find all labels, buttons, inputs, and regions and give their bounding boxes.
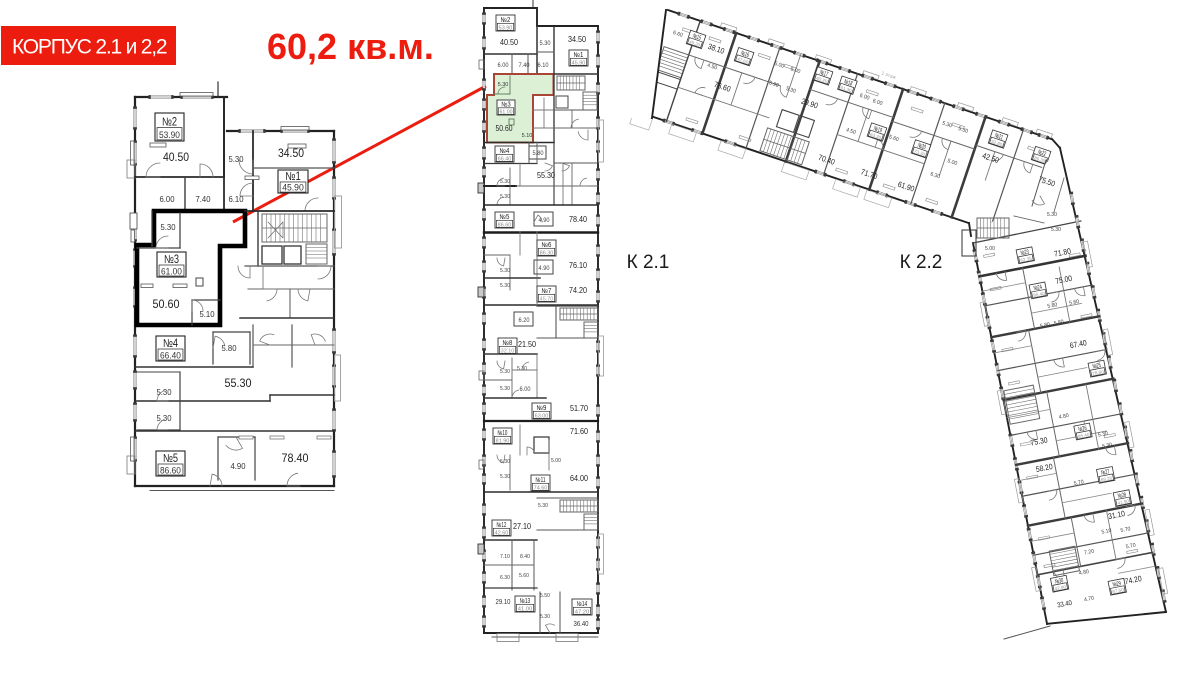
svg-text:50.60: 50.60 [496,123,513,133]
svg-text:5.30: 5.30 [500,268,510,274]
svg-text:5.30: 5.30 [540,41,552,47]
svg-text:5.30: 5.30 [1047,212,1057,218]
svg-text:86.60: 86.60 [160,466,181,477]
svg-text:№7: №7 [542,288,552,295]
svg-text:86.30: 86.30 [540,250,554,256]
svg-text:6.00: 6.00 [520,387,532,393]
svg-text:21.50: 21.50 [518,339,536,349]
svg-text:5.30: 5.30 [229,154,244,164]
svg-text:60,2 кв.м.: 60,2 кв.м. [267,26,434,67]
svg-text:5.10: 5.10 [522,133,533,139]
svg-text:КОРПУС 2.1 и 2,2: КОРПУС 2.1 и 2,2 [12,36,167,59]
svg-text:5.50: 5.50 [540,593,550,599]
svg-text:5.30: 5.30 [1051,227,1061,233]
svg-text:50.60: 50.60 [153,297,180,311]
svg-text:4.90: 4.90 [539,266,551,272]
svg-text:74.20: 74.20 [569,285,587,295]
svg-text:№14: №14 [577,601,587,608]
svg-text:51.70: 51.70 [570,403,588,413]
svg-text:5.10: 5.10 [200,309,215,319]
svg-text:5.30: 5.30 [500,194,510,200]
svg-text:40.50: 40.50 [163,150,189,164]
svg-text:81.90: 81.90 [496,438,510,444]
svg-text:8.40: 8.40 [520,554,530,560]
svg-text:5.60: 5.60 [519,573,529,579]
svg-text:№3: №3 [501,102,510,109]
svg-text:№8: №8 [503,340,513,347]
svg-text:71.60: 71.60 [570,426,588,436]
svg-text:34.50: 34.50 [278,146,304,160]
svg-text:7.40: 7.40 [196,194,211,204]
svg-text:5.80: 5.80 [222,343,237,353]
svg-text:№6: №6 [542,242,552,249]
svg-text:78.40: 78.40 [282,451,309,465]
svg-text:№9: №9 [537,405,547,412]
svg-text:№13: №13 [520,598,530,605]
svg-text:5.30: 5.30 [538,503,548,509]
svg-text:55.30: 55.30 [537,170,555,180]
svg-text:№5: №5 [500,214,510,221]
svg-text:№2: №2 [501,17,511,24]
svg-text:63.00: 63.00 [535,413,549,419]
svg-text:5.30: 5.30 [161,222,176,232]
svg-text:№4: №4 [500,148,510,155]
svg-text:66.40: 66.40 [498,156,512,162]
svg-text:5.30: 5.30 [157,413,172,423]
svg-text:61.00: 61.00 [161,267,182,278]
svg-text:5.30: 5.30 [500,369,510,375]
svg-text:6.30: 6.30 [500,575,510,581]
svg-text:5.30: 5.30 [500,283,510,289]
svg-text:№10: №10 [498,430,508,437]
svg-text:45.70: 45.70 [540,296,554,302]
svg-text:5.30: 5.30 [157,387,172,397]
svg-text:5.30: 5.30 [540,614,550,620]
svg-text:5.30: 5.30 [500,179,510,185]
svg-text:27.10: 27.10 [513,521,531,531]
svg-text:4.90: 4.90 [231,461,246,471]
svg-text:78.40: 78.40 [569,214,587,224]
svg-text:29.10: 29.10 [496,597,511,606]
svg-text:№5: №5 [163,453,178,465]
svg-text:5.00: 5.00 [985,246,995,252]
svg-text:53.90: 53.90 [159,130,180,141]
svg-text:41.00: 41.00 [518,606,533,612]
svg-text:№4: №4 [163,338,179,350]
svg-text:36.40: 36.40 [574,619,589,628]
svg-text:5.30: 5.30 [500,386,510,392]
svg-text:6.10: 6.10 [538,63,550,69]
svg-text:64.00: 64.00 [570,473,588,483]
svg-text:74.60: 74.60 [534,485,548,491]
svg-text:86.60: 86.60 [498,222,512,228]
svg-text:5.30: 5.30 [498,82,509,88]
svg-text:47.20: 47.20 [575,609,590,615]
svg-text:6.00: 6.00 [160,194,175,204]
svg-text:6.20: 6.20 [519,318,531,324]
svg-text:7.10: 7.10 [500,554,510,560]
svg-text:7.40: 7.40 [519,63,531,69]
svg-text:40.50: 40.50 [500,37,518,47]
svg-text:45.90: 45.90 [572,60,586,66]
svg-text:№2: №2 [162,116,177,128]
svg-text:66.40: 66.40 [160,351,181,362]
svg-text:53.90: 53.90 [499,25,513,31]
svg-text:№11: №11 [536,477,546,484]
svg-text:5.80: 5.80 [533,151,545,157]
svg-text:6.10: 6.10 [229,194,244,204]
svg-text:55.30: 55.30 [225,376,252,390]
svg-text:4.90: 4.90 [539,218,551,224]
svg-text:42.60: 42.60 [495,530,509,536]
svg-text:№3: №3 [164,254,179,266]
svg-text:К 2.1: К 2.1 [627,252,670,273]
svg-text:76.10: 76.10 [569,260,587,270]
svg-text:34.50: 34.50 [568,34,586,44]
svg-text:6.00: 6.00 [498,63,510,69]
svg-text:45.90: 45.90 [282,183,304,194]
svg-text:5.30: 5.30 [500,474,510,480]
svg-text:№1: №1 [285,171,301,183]
svg-text:61.00: 61.00 [500,110,513,116]
svg-text:№1: №1 [574,52,584,59]
svg-text:№12: №12 [497,522,507,529]
svg-text:К 2.2: К 2.2 [900,252,943,273]
svg-text:5.00: 5.00 [551,458,561,464]
